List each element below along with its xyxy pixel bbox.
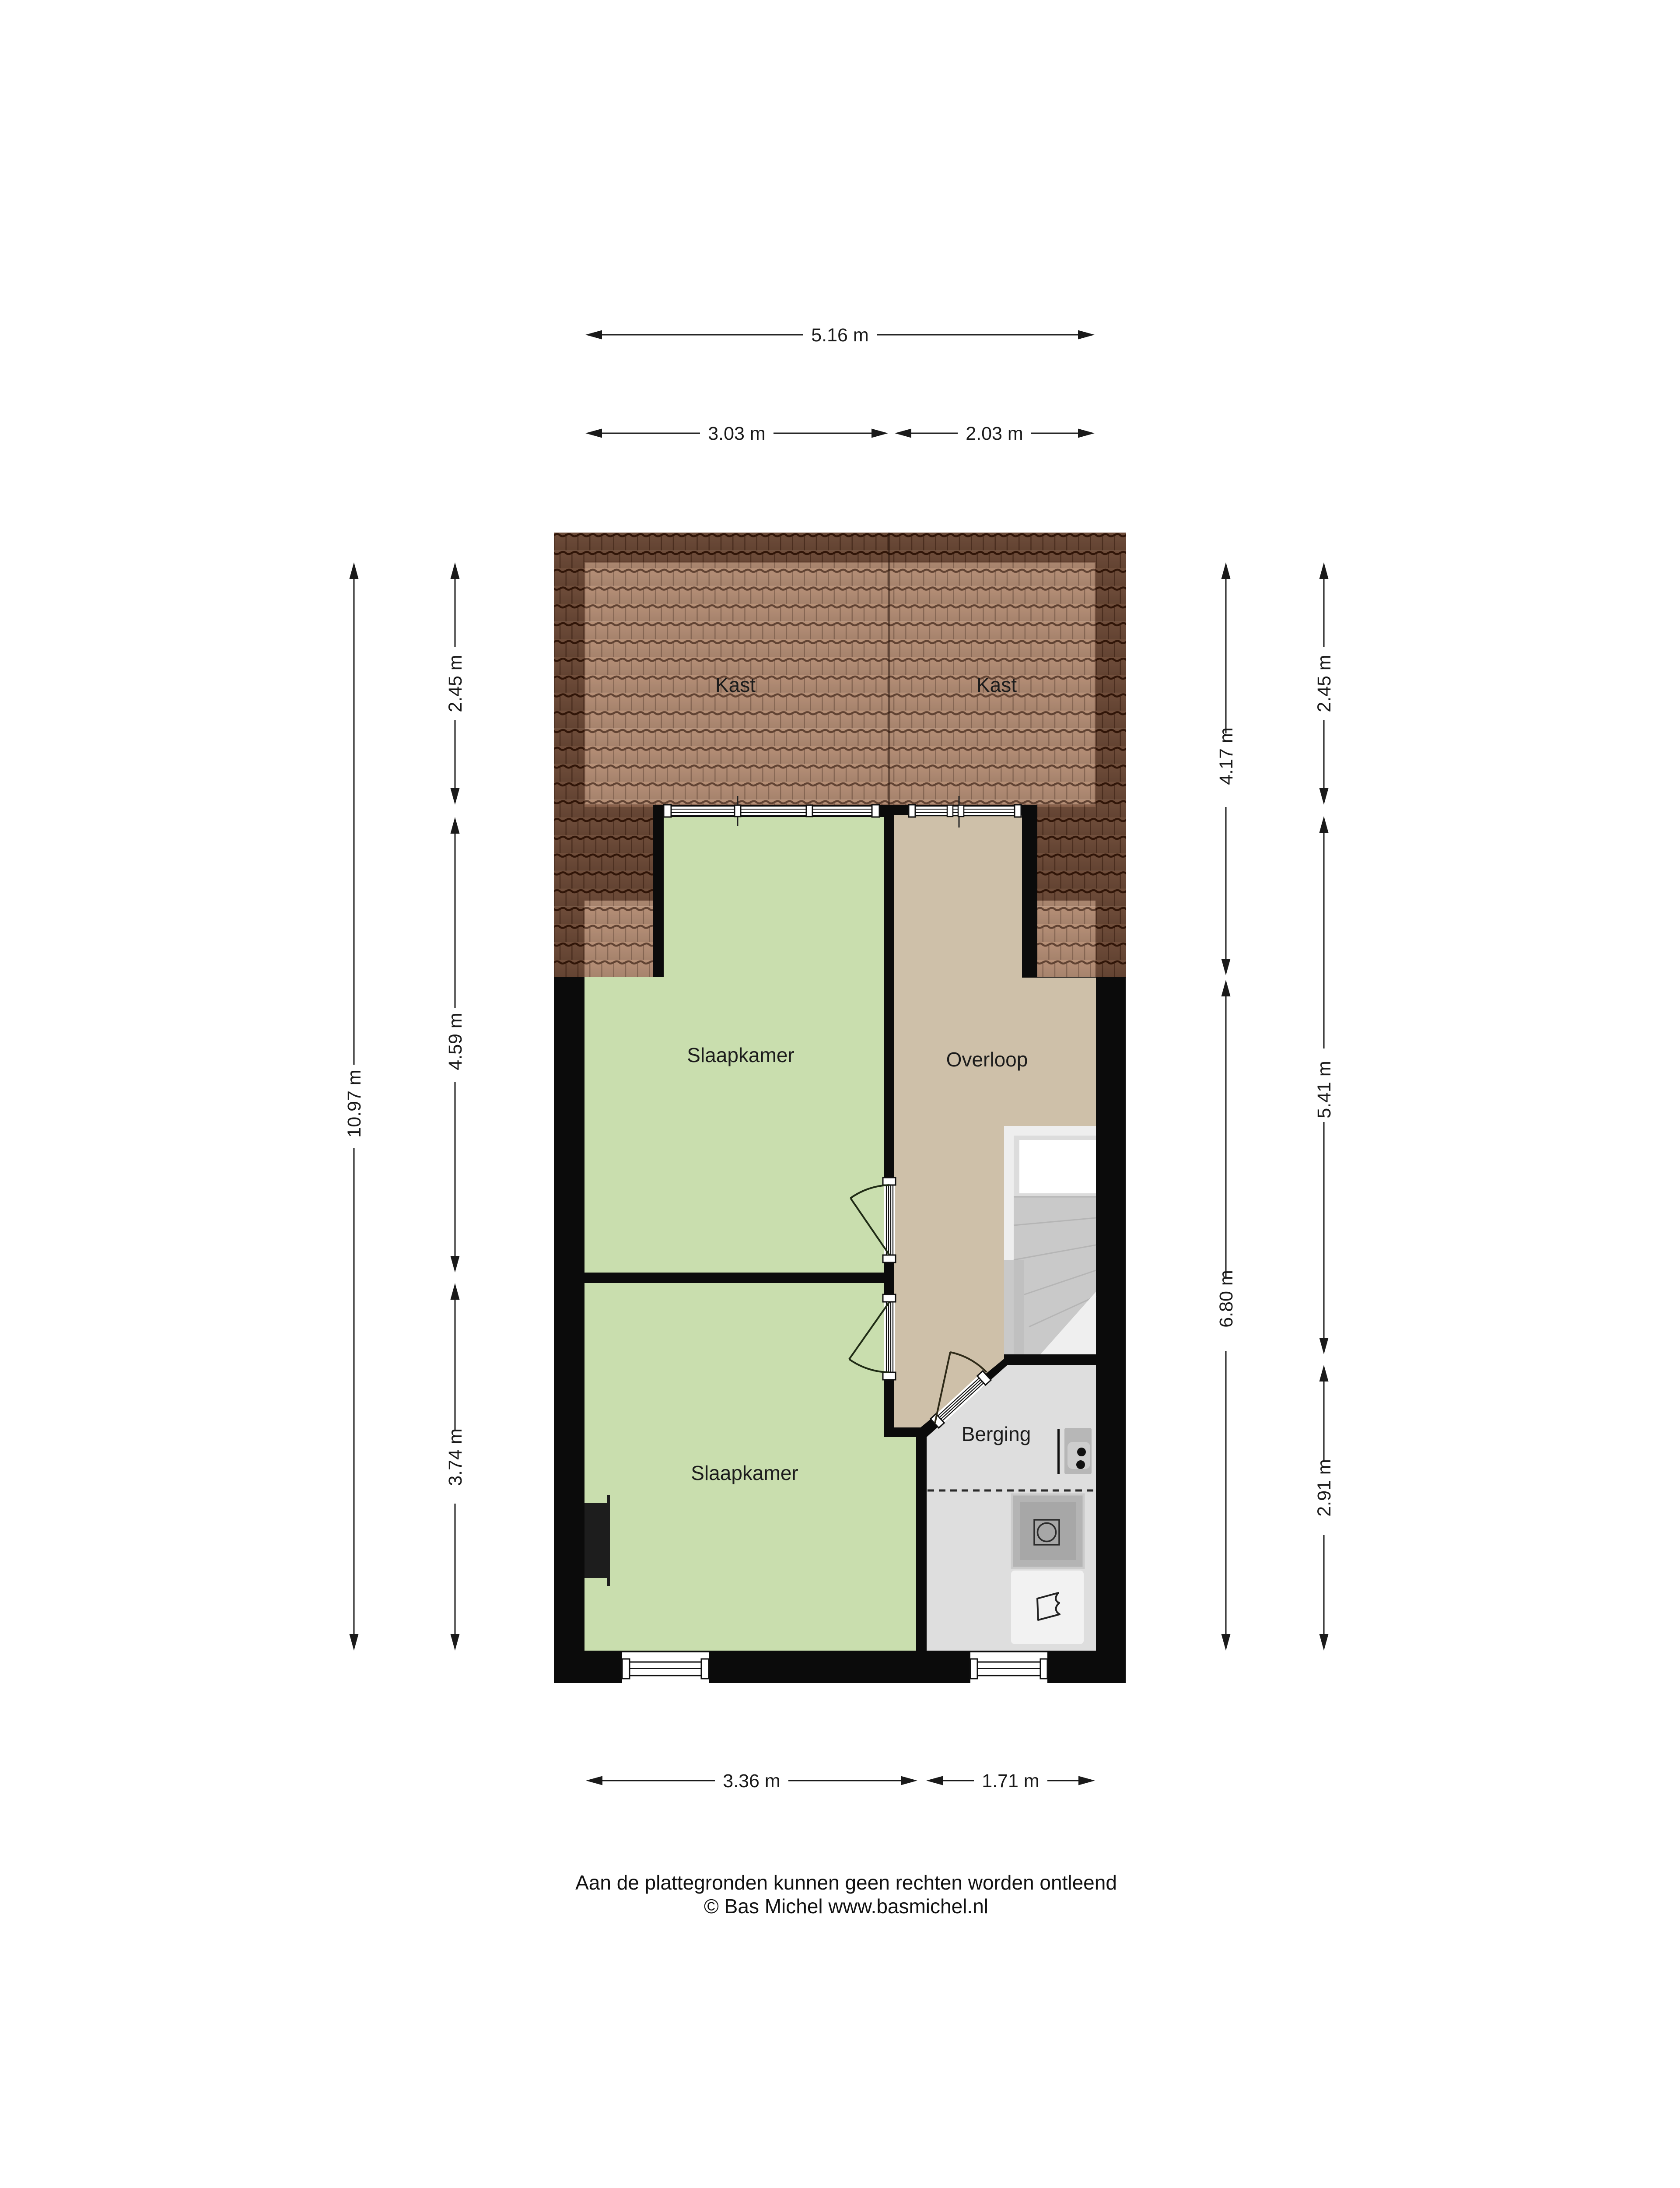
svg-text:© Bas Michel www.basmichel.nl: © Bas Michel www.basmichel.nl	[704, 1895, 988, 1918]
svg-text:2.03 m: 2.03 m	[966, 423, 1023, 444]
svg-text:3.03 m: 3.03 m	[708, 423, 765, 444]
svg-text:5.41 m: 5.41 m	[1314, 1061, 1335, 1118]
svg-text:4.17 m: 4.17 m	[1216, 727, 1237, 785]
svg-text:Berging: Berging	[962, 1423, 1031, 1445]
svg-text:6.80 m: 6.80 m	[1216, 1270, 1237, 1327]
svg-text:5.16 m: 5.16 m	[811, 325, 868, 346]
svg-text:Aan de plattegronden kunnen ge: Aan de plattegronden kunnen geen rechten…	[575, 1871, 1117, 1894]
svg-text:Slaapkamer: Slaapkamer	[691, 1462, 798, 1484]
svg-text:Overloop: Overloop	[946, 1048, 1028, 1071]
svg-text:3.36 m: 3.36 m	[723, 1771, 780, 1792]
svg-text:3.74 m: 3.74 m	[445, 1428, 466, 1486]
svg-text:Kast: Kast	[976, 673, 1017, 696]
svg-text:2.45 m: 2.45 m	[445, 655, 466, 712]
svg-text:2.91 m: 2.91 m	[1314, 1459, 1335, 1516]
svg-text:10.97 m: 10.97 m	[344, 1069, 365, 1137]
svg-text:1.71 m: 1.71 m	[982, 1771, 1039, 1792]
svg-text:4.59 m: 4.59 m	[445, 1013, 466, 1070]
svg-text:Kast: Kast	[715, 673, 756, 696]
svg-text:Slaapkamer: Slaapkamer	[687, 1044, 794, 1066]
svg-text:2.45 m: 2.45 m	[1314, 655, 1335, 712]
